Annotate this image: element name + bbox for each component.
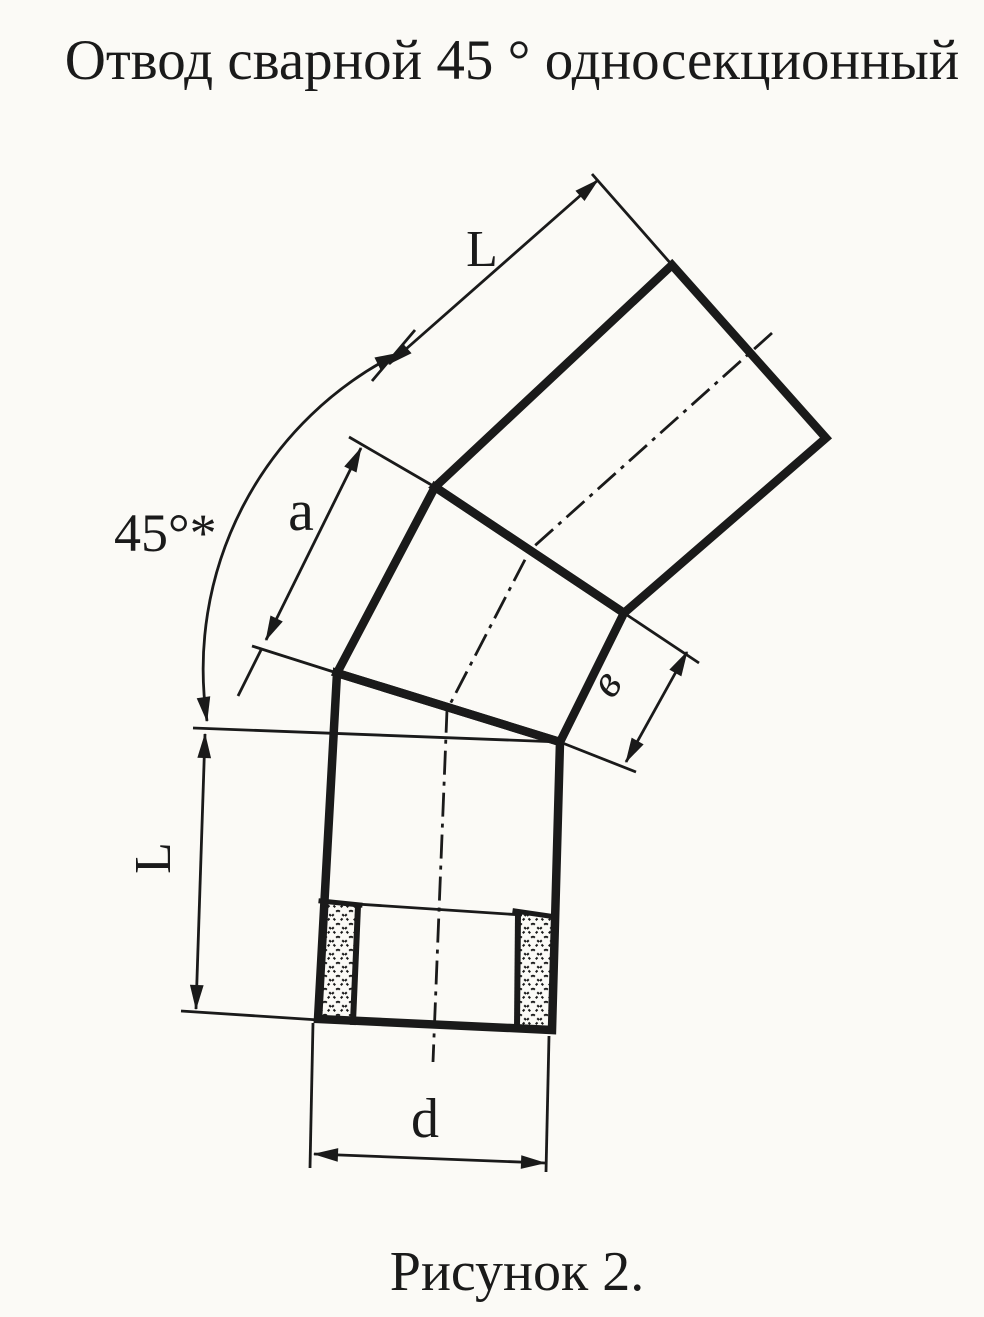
dim-label-L-top: L xyxy=(466,221,498,278)
dim-label-angle: 45°* xyxy=(114,503,217,563)
paper-background xyxy=(0,0,984,1317)
elbow-drawing: Отвод сварной 45 ° односекционный L xyxy=(0,0,984,1317)
wall-inner-line-right xyxy=(517,914,518,1028)
wall-hatch-right-band xyxy=(517,914,554,1031)
drawing-title: Отвод сварной 45 ° односекционный xyxy=(65,29,960,92)
dim-label-a: a xyxy=(288,478,314,543)
dim-label-L-left: L xyxy=(125,842,182,874)
dim-label-d: d xyxy=(411,1088,439,1150)
figure-caption: Рисунок 2. xyxy=(390,1241,644,1303)
scanned-drawing-page: Отвод сварной 45 ° односекционный L xyxy=(0,0,984,1317)
